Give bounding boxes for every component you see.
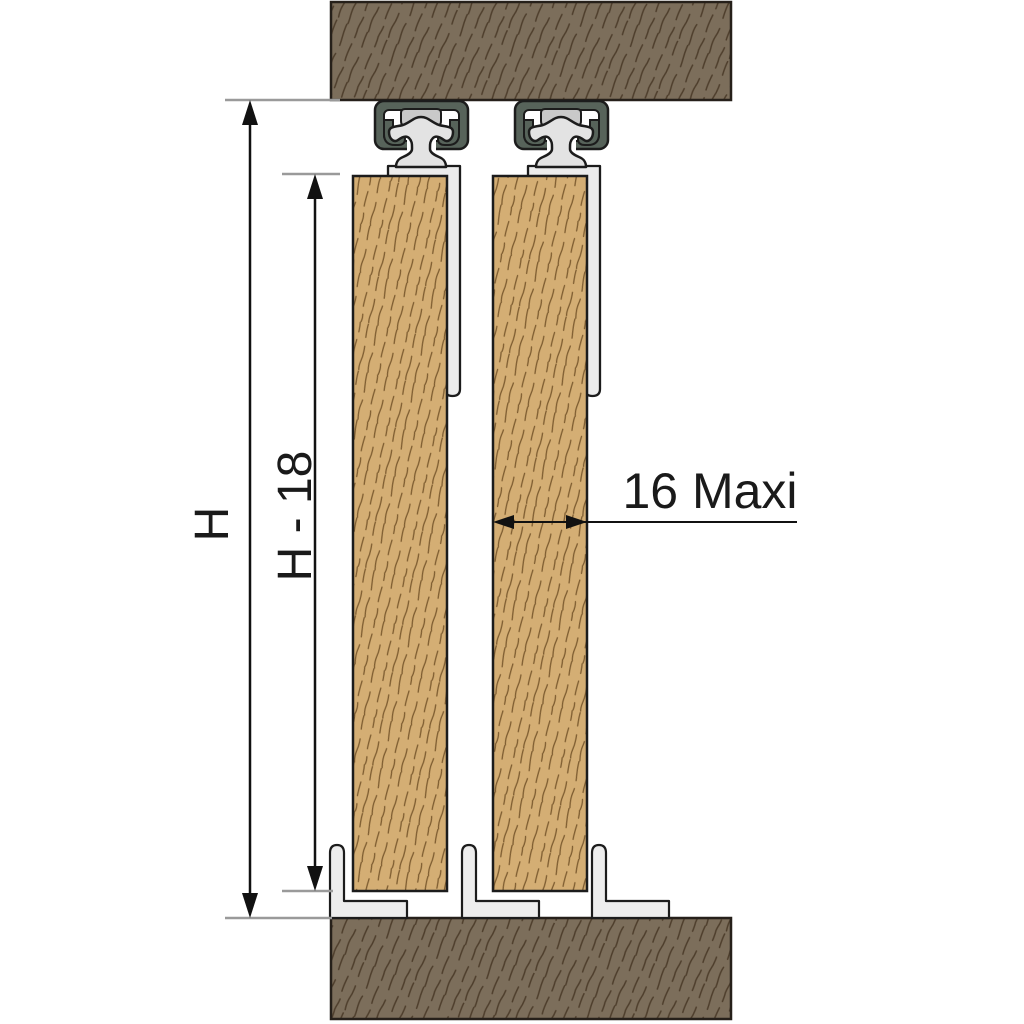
arrow-down-icon bbox=[307, 866, 323, 891]
dimension-door-height: H - 18 bbox=[269, 174, 340, 891]
diagram-stage: H H - 18 16 Maxi bbox=[0, 0, 1024, 1024]
arrow-up-icon bbox=[307, 174, 323, 199]
door-thickness-label: 16 Maxi bbox=[622, 463, 797, 519]
door-height-label: H - 18 bbox=[269, 451, 322, 582]
arrow-down-icon bbox=[242, 893, 258, 918]
arrow-up-icon bbox=[242, 100, 258, 125]
floor-guide-3 bbox=[592, 845, 669, 918]
sliding-door-section-diagram: H H - 18 16 Maxi bbox=[0, 0, 1024, 1024]
door-panel-2 bbox=[493, 176, 587, 891]
bottom-beam bbox=[331, 918, 731, 1019]
top-beam bbox=[331, 2, 731, 100]
door-panel-1 bbox=[353, 176, 447, 891]
opening-height-label: H bbox=[186, 507, 239, 542]
